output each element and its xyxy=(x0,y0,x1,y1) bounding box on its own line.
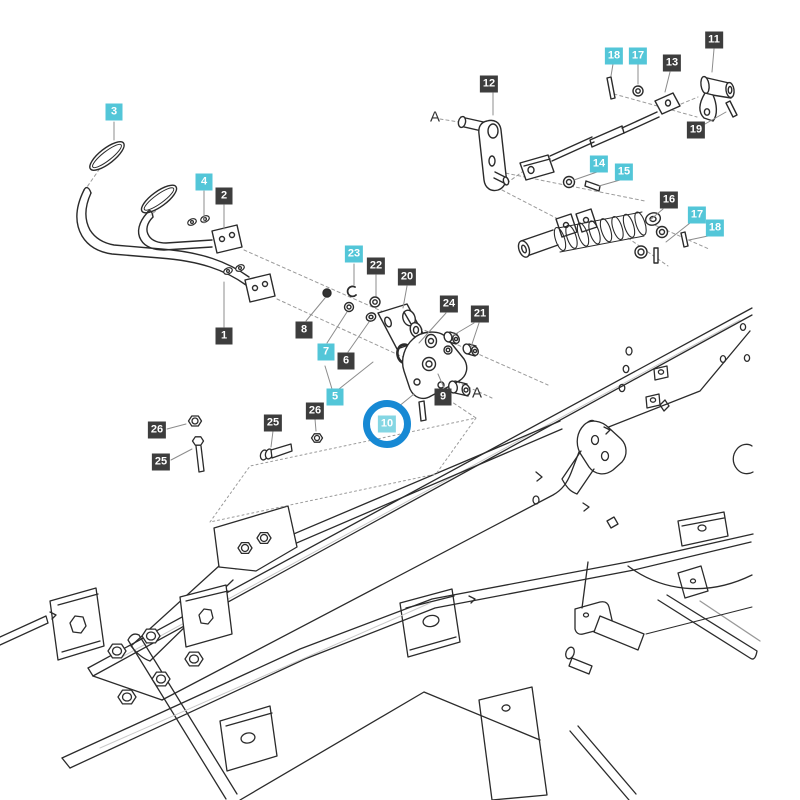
part-label-10[interactable]: 10 xyxy=(378,416,396,433)
part-label-25[interactable]: 25 xyxy=(152,454,170,471)
part-label-9[interactable]: 9 xyxy=(435,389,452,406)
part-label-21[interactable]: 21 xyxy=(471,306,489,323)
part-label-24[interactable]: 24 xyxy=(440,296,458,313)
part-label-18[interactable]: 18 xyxy=(706,220,724,237)
part-label-17[interactable]: 17 xyxy=(629,48,647,65)
part-label-25[interactable]: 25 xyxy=(264,415,282,432)
part-label-5[interactable]: 5 xyxy=(327,389,344,406)
part-label-26[interactable]: 26 xyxy=(148,422,166,439)
part-label-11[interactable]: 11 xyxy=(705,32,723,49)
part-label-15[interactable]: 15 xyxy=(615,164,633,181)
part-label-17[interactable]: 17 xyxy=(688,207,706,224)
part-label-16[interactable]: 16 xyxy=(660,192,678,209)
view-marker-A-1: A xyxy=(472,385,482,402)
part-label-3[interactable]: 3 xyxy=(106,104,123,121)
part-label-20[interactable]: 20 xyxy=(398,269,416,286)
part-label-12[interactable]: 12 xyxy=(480,76,498,93)
view-marker-A-0: A xyxy=(430,109,440,126)
part-label-7[interactable]: 7 xyxy=(318,344,335,361)
parts-diagram-page: 3421232220242187659102625252612181713111… xyxy=(0,0,800,800)
part-label-19[interactable]: 19 xyxy=(687,122,705,139)
part-label-6[interactable]: 6 xyxy=(338,353,355,370)
part-label-18[interactable]: 18 xyxy=(605,48,623,65)
part-label-22[interactable]: 22 xyxy=(367,258,385,275)
part-label-26[interactable]: 26 xyxy=(306,403,324,420)
part-label-23[interactable]: 23 xyxy=(345,246,363,263)
part-label-1[interactable]: 1 xyxy=(216,328,233,345)
part-label-4[interactable]: 4 xyxy=(196,174,213,191)
part-label-8[interactable]: 8 xyxy=(296,322,313,339)
part-label-14[interactable]: 14 xyxy=(590,156,608,173)
part-label-13[interactable]: 13 xyxy=(663,55,681,72)
part-label-2[interactable]: 2 xyxy=(216,188,233,205)
labels-layer: 3421232220242187659102625252612181713111… xyxy=(0,0,800,800)
